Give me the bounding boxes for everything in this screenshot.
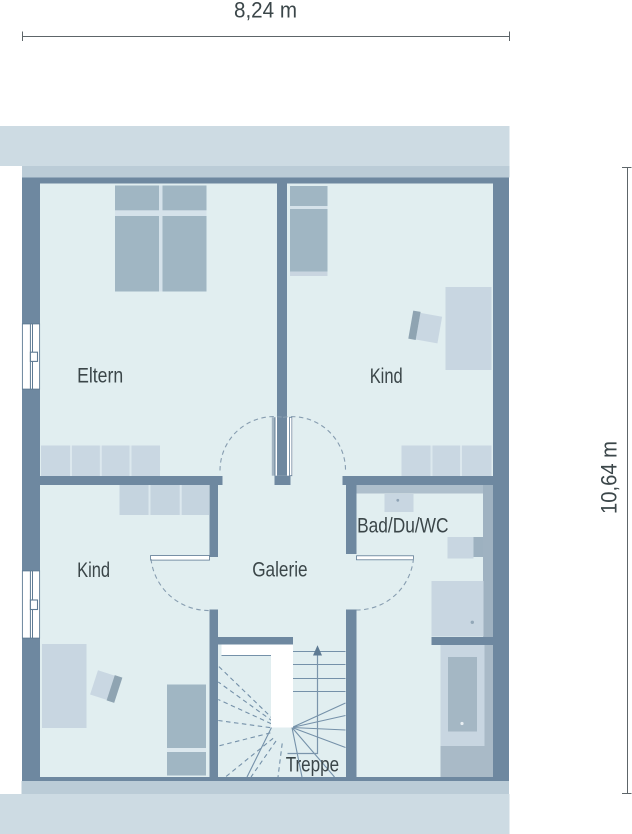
svg-text:Kind: Kind bbox=[370, 364, 403, 388]
svg-text:10,64 m: 10,64 m bbox=[597, 441, 622, 514]
svg-text:Bad/Du/WC: Bad/Du/WC bbox=[357, 514, 448, 538]
svg-text:Kind: Kind bbox=[77, 558, 110, 582]
svg-text:Treppe: Treppe bbox=[286, 753, 340, 777]
svg-text:8,24 m: 8,24 m bbox=[234, 0, 297, 23]
svg-text:Galerie: Galerie bbox=[252, 558, 307, 582]
svg-text:Eltern: Eltern bbox=[77, 363, 123, 387]
